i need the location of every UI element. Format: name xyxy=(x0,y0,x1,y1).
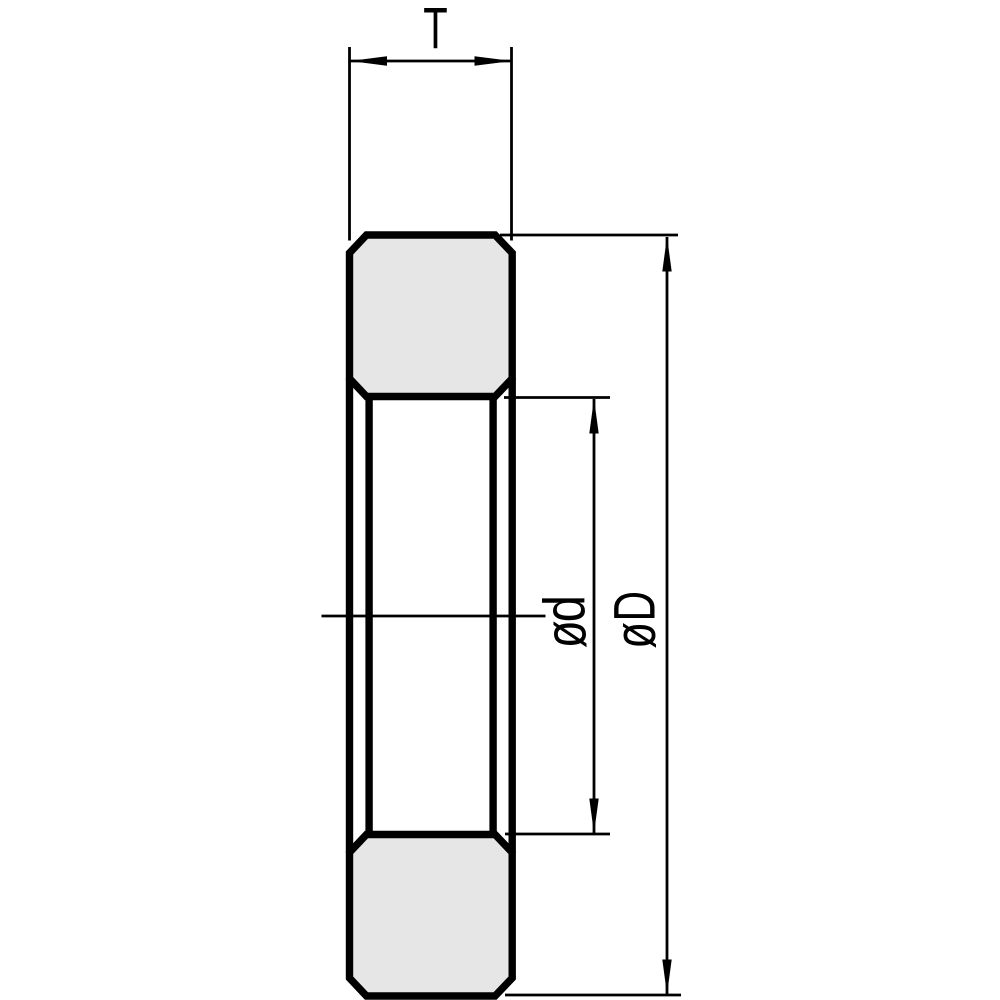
svg-text:ø: ø xyxy=(535,620,599,648)
svg-text:d: d xyxy=(534,595,598,622)
svg-text:ø: ø xyxy=(602,622,667,649)
svg-text:T: T xyxy=(423,0,447,61)
svg-text:D: D xyxy=(602,591,667,622)
